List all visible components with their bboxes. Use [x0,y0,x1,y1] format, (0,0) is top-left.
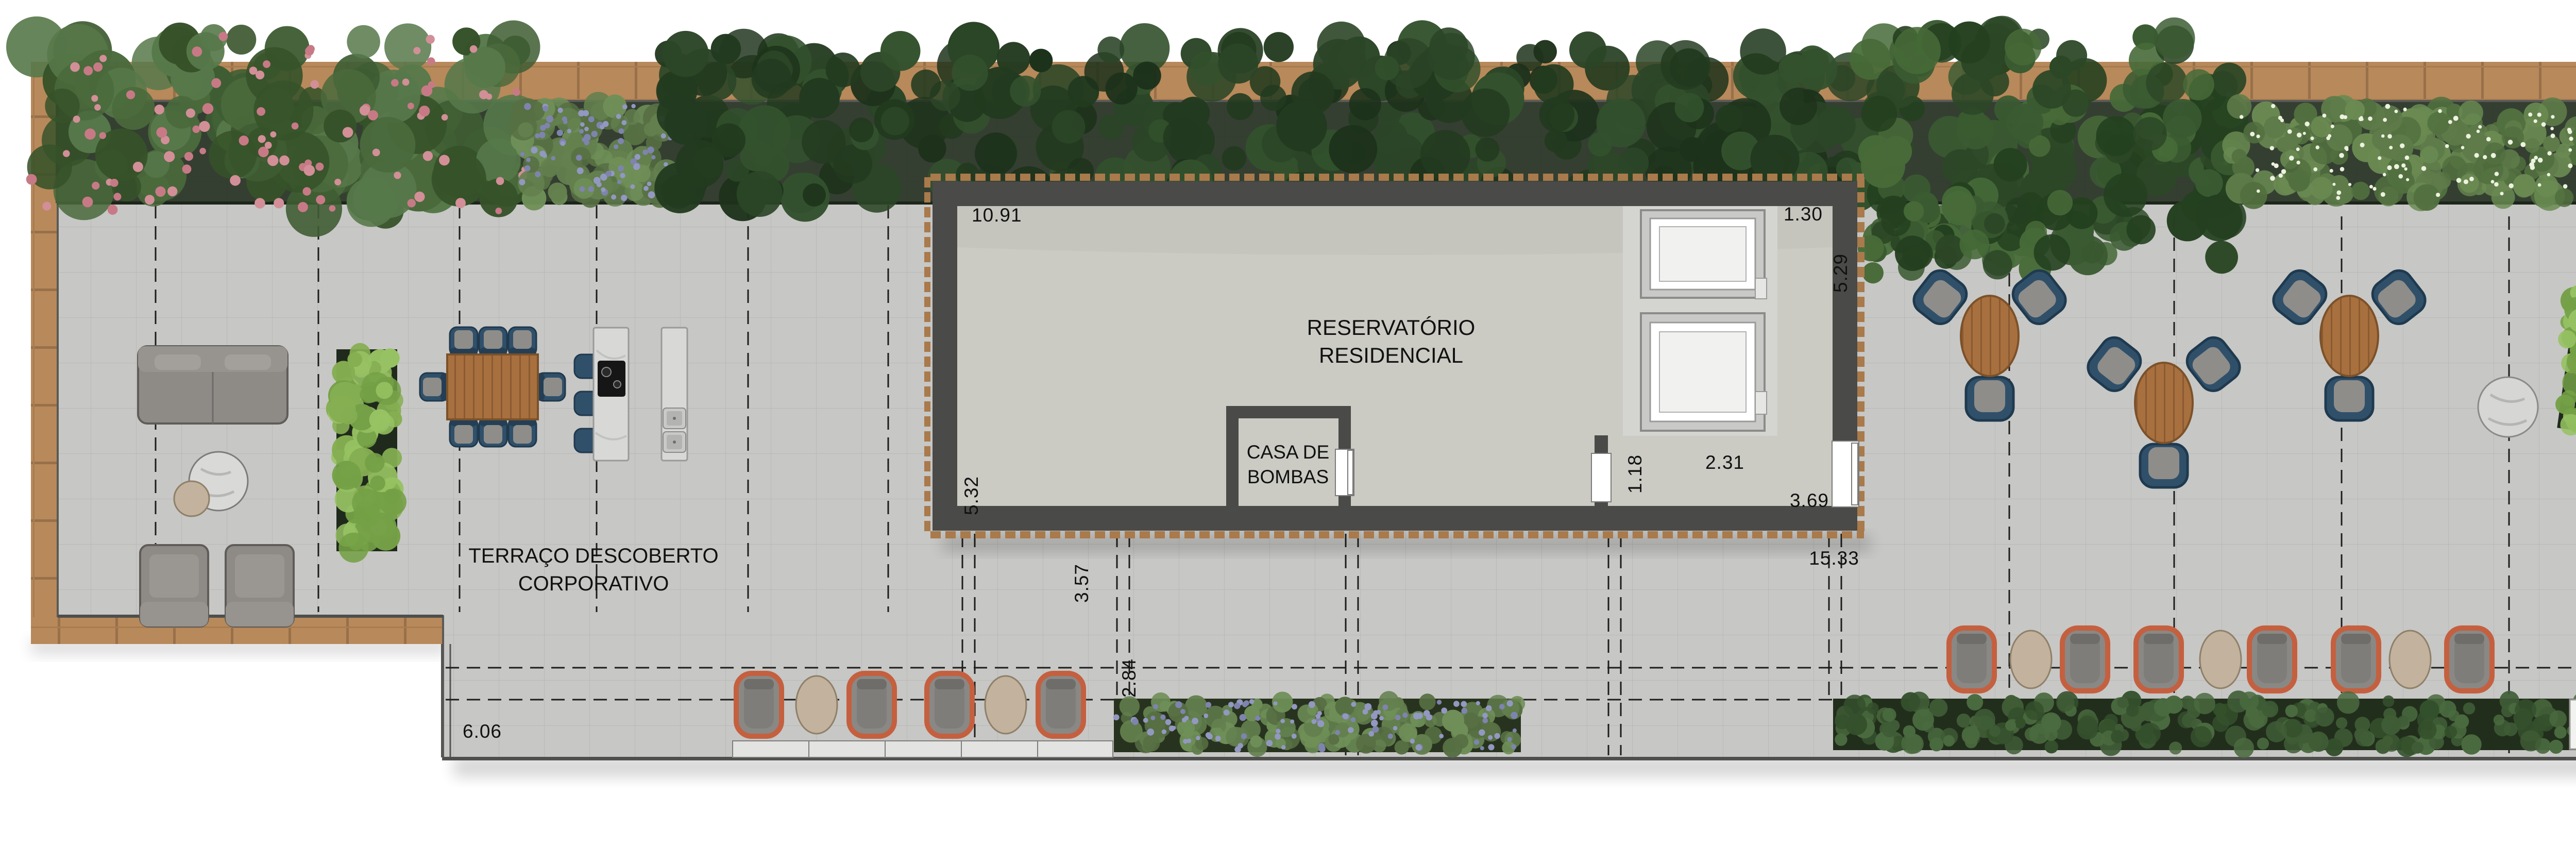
reservoir-building: RESERVATÓRIO RESIDENCIAL CASA DE BOMBAS … [927,177,1870,551]
sun-lounger [1038,673,1083,736]
bistro-chair [2326,377,2373,420]
dining-chair [479,418,507,447]
sun-lounger [736,673,782,736]
armchair [226,545,294,626]
dim-terrace-left-depth: 6.06 [463,721,502,742]
lounger-side-table [796,676,837,734]
lavender-bed-top-1 [510,92,680,210]
bistro-chair [2140,444,2188,487]
bistro-chair [1966,377,2013,420]
dim-reservoir-width-top: 10.91 [972,205,1022,226]
dim-building-total-width: 15.33 [1809,548,1859,569]
dim-reservoir-height-right: 5.29 [1830,253,1851,293]
dim-equipment-bay-width: 1.30 [1784,204,1823,225]
dining-chair [509,418,536,447]
dim-corridor-depth: 3.69 [1790,490,1829,511]
sun-lounger-row-middle [1949,628,2492,691]
sink [663,432,686,452]
sun-lounger [1949,628,1994,691]
sink [663,408,686,429]
outdoor-sofa [138,346,287,423]
shrubs-pink-flowering [6,16,544,237]
side-table-round [174,481,209,516]
equipment-unit [1641,313,1767,431]
sun-lounger [2333,628,2379,691]
lounger-side-table [2200,631,2241,688]
dining-chair [479,327,507,356]
dining-chair [450,327,478,356]
terrace-label-line2: CORPORATIVO [518,572,669,595]
lounger-side-table [985,676,1026,734]
lounger-side-table [2010,631,2052,688]
sun-lounger [2249,628,2295,691]
step-bench-white [2570,700,2576,749]
bench [733,741,1113,757]
sun-lounger [2447,628,2492,691]
dining-table [447,354,538,419]
dining-chair [536,373,565,401]
cooktop [598,361,625,397]
bistro-table [1961,296,2019,376]
floor-plan: RESERVATÓRIO RESIDENCIAL CASA DE BOMBAS … [0,0,2576,847]
dining-chair [450,418,478,447]
dim-offset-below-left: 3.57 [1071,564,1092,603]
sun-lounger [849,673,894,736]
dim-pump-corridor-width: 2.31 [1705,452,1744,473]
sun-lounger [2136,628,2181,691]
sun-lounger [927,673,972,736]
fire-pit-table [2478,377,2538,437]
reservoir-label-line2: RESIDENCIAL [1319,343,1463,367]
bistro-table [2135,363,2193,443]
dining-chair [420,373,449,401]
bistro-table [2320,296,2378,376]
corridor-door-left [1591,453,1611,502]
reservoir-label-line1: RESERVATÓRIO [1307,315,1476,340]
lounger-side-table [2389,631,2431,688]
armchair [140,545,208,626]
dim-pump-door-width: 1.18 [1624,454,1646,494]
terrace-label-line1: TERRAÇO DESCOBERTO [468,545,718,567]
equipment-unit [1641,210,1767,299]
dim-reservoir-height-left: 5.32 [961,476,982,515]
floor-plan-canvas: RESERVATÓRIO RESIDENCIAL CASA DE BOMBAS … [0,0,2576,847]
pump-house-label-line2: BOMBAS [1247,466,1329,487]
sun-lounger [2062,628,2108,691]
pump-house-label-line1: CASA DE [1247,442,1329,463]
dim-walkway-width: 2.84 [1118,658,1140,698]
dining-chair [509,327,536,356]
